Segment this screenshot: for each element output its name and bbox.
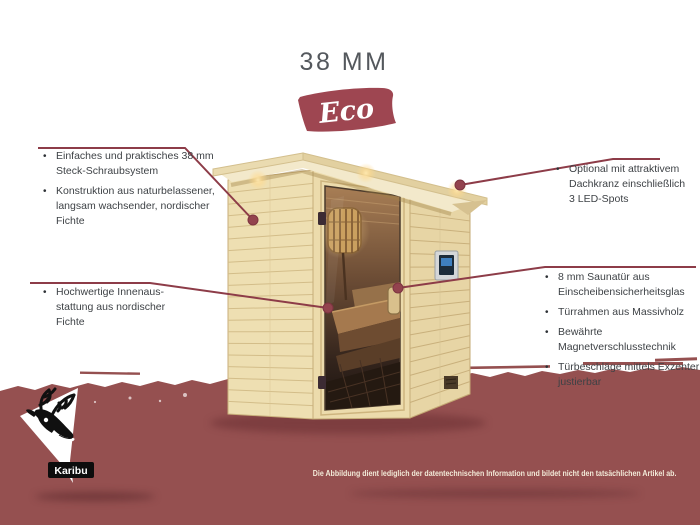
callout-dot-interior: [323, 303, 333, 313]
list-item: • 8 mm Saunatür aus Einscheibensicherhei…: [545, 270, 700, 300]
callout-block-construction: • Einfaches und praktisches 38 mm Steck-…: [43, 149, 253, 234]
logo-label: Karibu: [54, 465, 87, 477]
bullet-icon: •: [43, 285, 56, 330]
eco-badge: Eco: [293, 82, 403, 138]
bullet-icon: •: [43, 149, 56, 179]
callout-text: Konstruktion aus naturbelassener, langsa…: [56, 184, 215, 229]
disclaimer: Die Abbildung dient lediglich der datent…: [288, 469, 698, 478]
callout-text: Türrahmen aus Massivholz: [558, 305, 684, 320]
list-item: • Hochwertige Innenaus- stattung aus nor…: [43, 285, 223, 330]
bullet-icon: •: [545, 360, 558, 390]
callout-block-door: • 8 mm Saunatür aus Einscheibensicherhei…: [545, 270, 700, 395]
callout-block-roof: • Optional mit attraktivem Dachkranz ein…: [556, 162, 696, 212]
callout-text: Bewährte Magnetverschlusstechnik: [558, 325, 700, 355]
list-item: • Optional mit attraktivem Dachkranz ein…: [556, 162, 696, 207]
bullet-icon: •: [545, 305, 558, 320]
callout-text: Einfaches und praktisches 38 mm Steck-Sc…: [56, 149, 214, 179]
bullet-icon: •: [556, 162, 569, 207]
karibu-logo: Karibu: [12, 383, 117, 501]
callout-text: Hochwertige Innenaus- stattung aus nordi…: [56, 285, 165, 330]
callout-text: 8 mm Saunatür aus Einscheibensicherheits…: [558, 270, 685, 300]
list-item: • Bewährte Magnetverschlusstechnik: [545, 325, 700, 355]
bullet-icon: •: [545, 325, 558, 355]
callout-text: Türbeschläge mittels Exzenter justierbar: [558, 360, 699, 390]
list-item: • Türrahmen aus Massivholz: [545, 305, 700, 320]
bullet-icon: •: [43, 184, 56, 229]
list-item: • Türbeschläge mittels Exzenter justierb…: [545, 360, 700, 390]
callout-dot-door: [393, 283, 403, 293]
thickness-label: 38 MM: [244, 48, 444, 77]
list-item: • Konstruktion aus naturbelassener, lang…: [43, 184, 253, 229]
callout-block-interior: • Hochwertige Innenaus- stattung aus nor…: [43, 285, 223, 335]
eco-badge-label: Eco: [317, 93, 376, 130]
disclaimer-text: Die Abbildung dient lediglich der datent…: [313, 469, 677, 478]
bullet-icon: •: [545, 270, 558, 300]
list-item: • Einfaches und praktisches 38 mm Steck-…: [43, 149, 253, 179]
page: 38 MM Eco • Einfaches und praktisches 38…: [0, 0, 700, 525]
callout-text: Optional mit attraktivem Dachkranz einsc…: [569, 162, 685, 207]
callout-dot-roof: [455, 180, 465, 190]
